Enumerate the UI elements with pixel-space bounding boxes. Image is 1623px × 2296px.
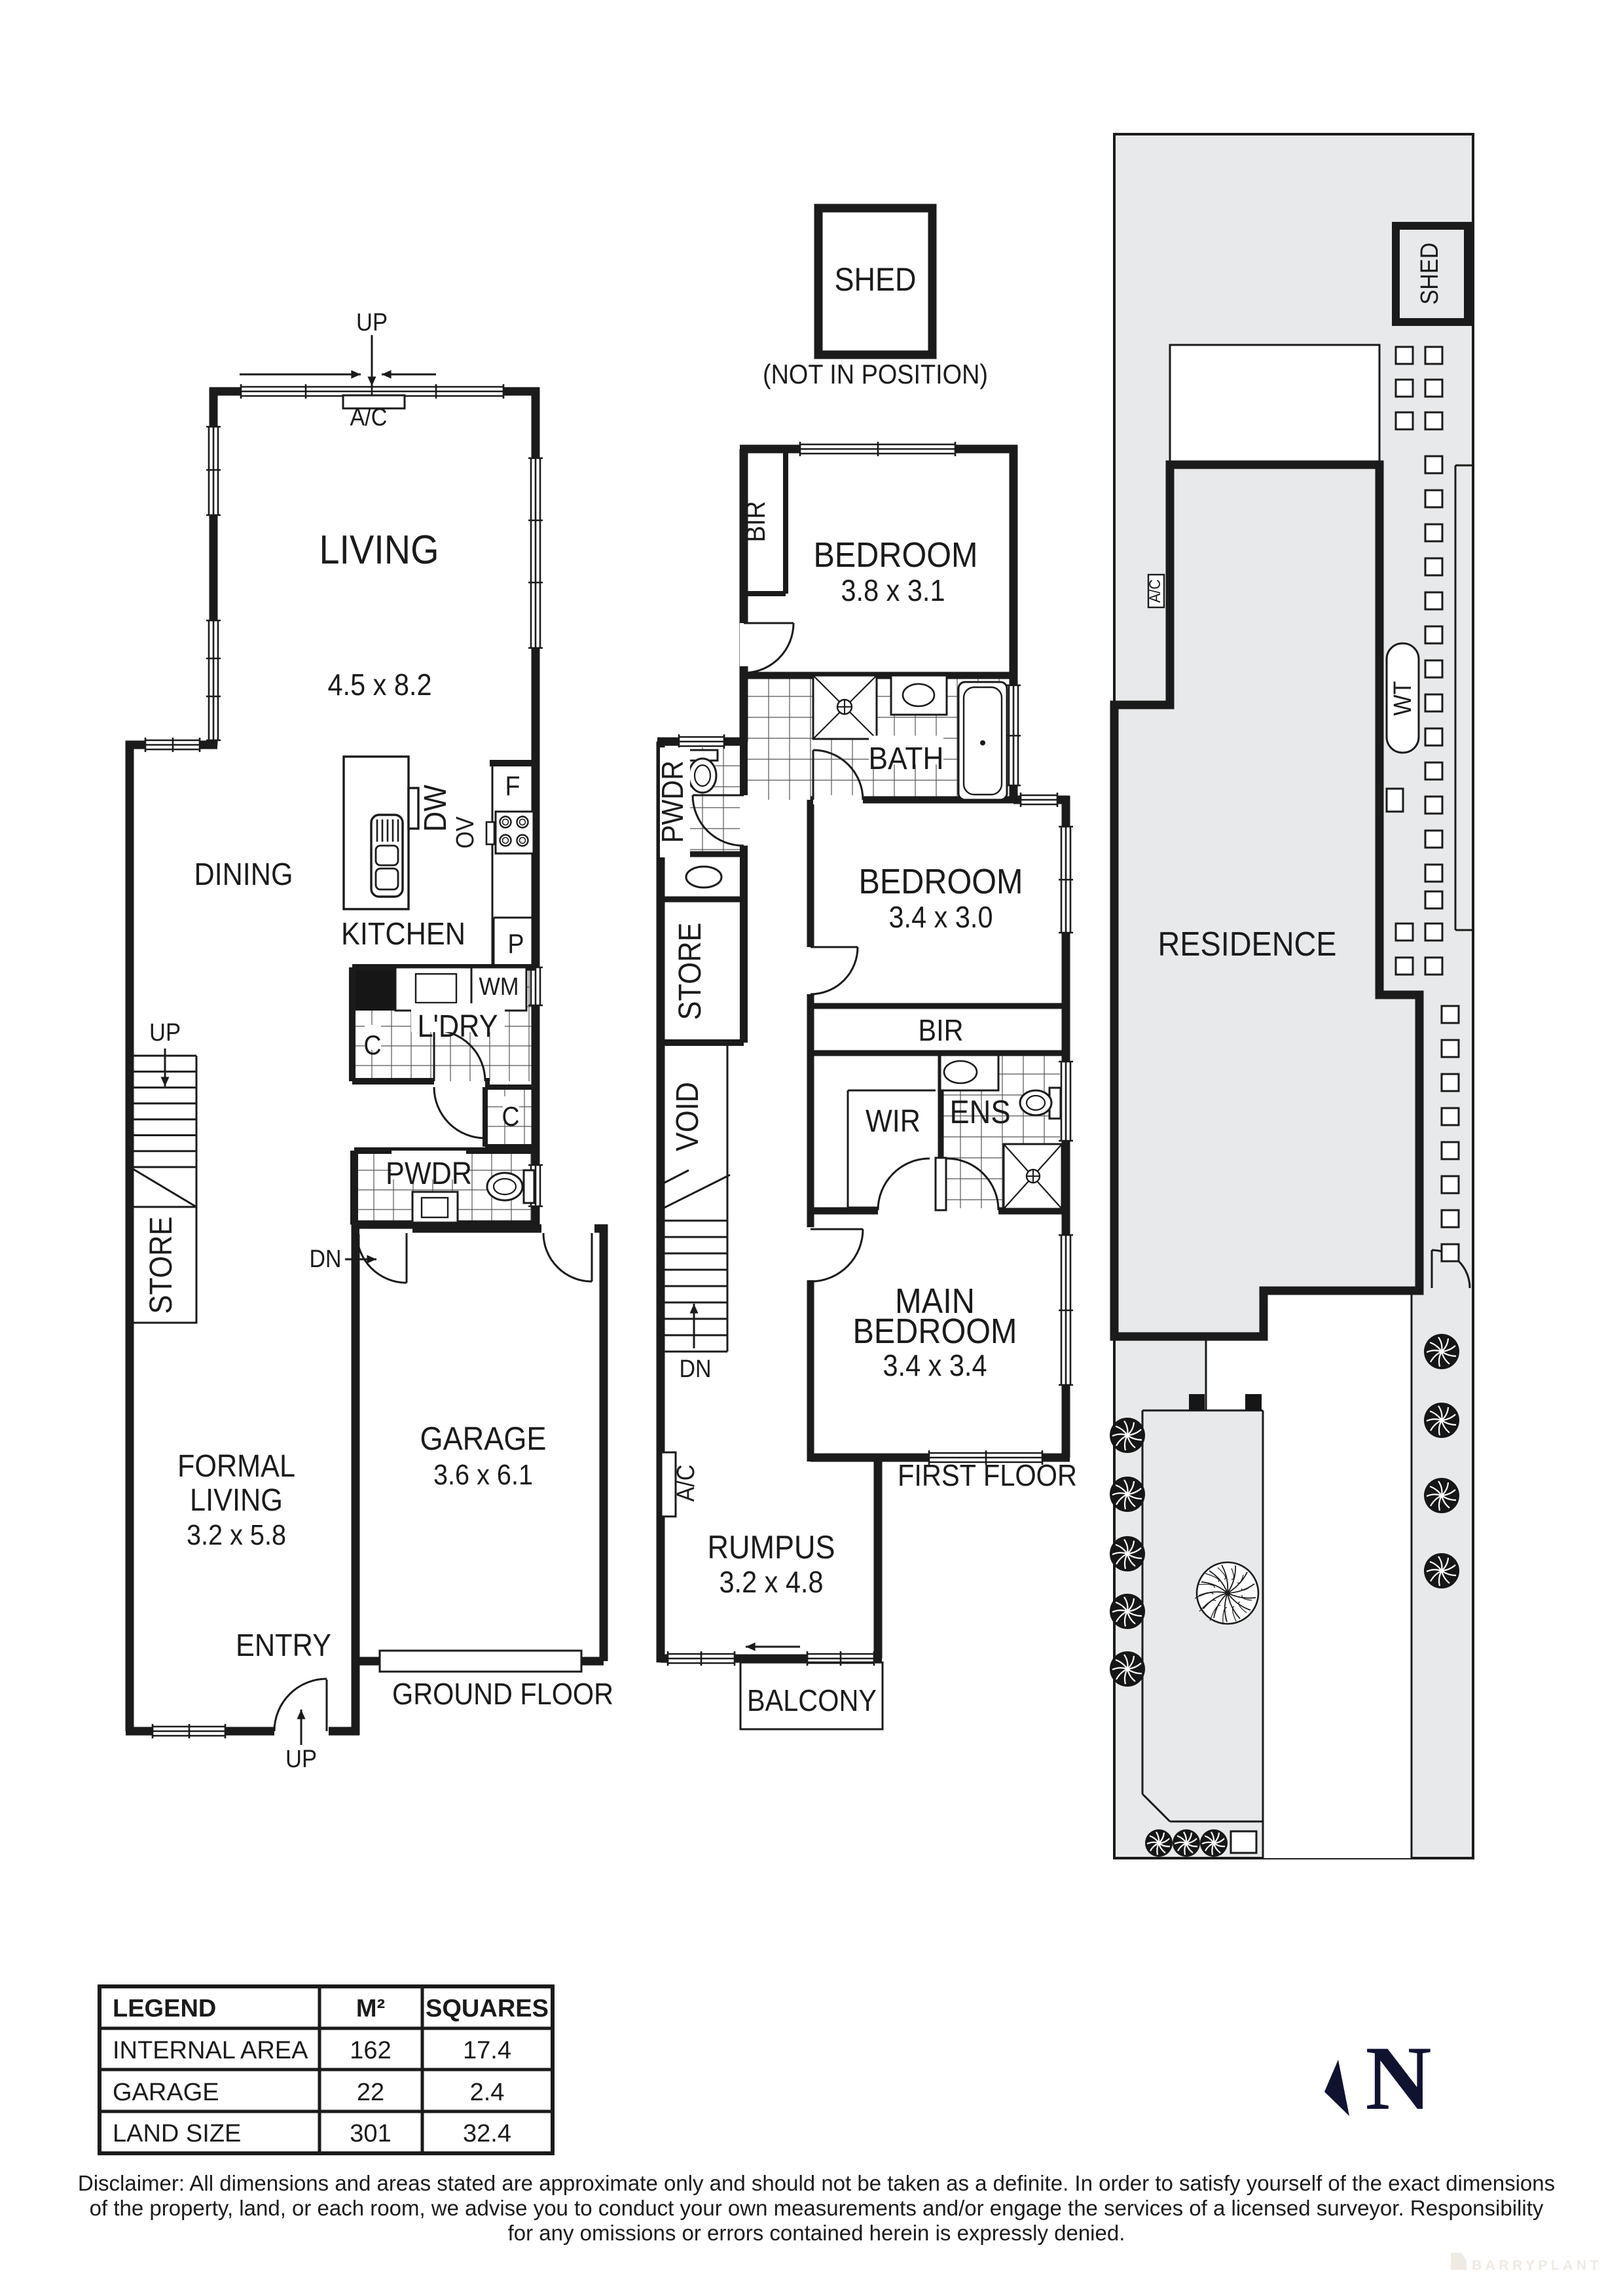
svg-text:BEDROOM: BEDROOM (814, 535, 978, 575)
svg-text:3.6 x 6.1: 3.6 x 6.1 (433, 1459, 533, 1491)
svg-text:SHED: SHED (835, 261, 917, 298)
svg-text:M²: M² (356, 1995, 385, 2022)
svg-text:BIR: BIR (740, 501, 771, 543)
svg-text:3.4 x 3.0: 3.4 x 3.0 (889, 900, 993, 934)
svg-text:KITCHEN: KITCHEN (341, 917, 465, 952)
svg-text:BIR: BIR (919, 1013, 964, 1047)
svg-text:F: F (505, 770, 520, 801)
svg-text:32.4: 32.4 (463, 2120, 511, 2147)
svg-text:DN: DN (310, 1246, 342, 1273)
svg-text:STORE: STORE (673, 923, 708, 1020)
svg-text:of the property, land, or each: of the property, land, or each room, we … (90, 2196, 1544, 2220)
svg-text:ENTRY: ENTRY (236, 1628, 331, 1663)
svg-text:VOID: VOID (670, 1082, 705, 1151)
svg-text:SHED: SHED (1416, 243, 1444, 305)
svg-text:GARAGE: GARAGE (113, 2079, 219, 2106)
svg-text:FORMAL: FORMAL (177, 1449, 295, 1484)
svg-text:L'DRY: L'DRY (418, 1009, 498, 1044)
svg-text:3.2 x 4.8: 3.2 x 4.8 (720, 1565, 824, 1599)
svg-text:BEDROOM: BEDROOM (853, 1312, 1017, 1351)
svg-text:LIVING: LIVING (319, 528, 439, 573)
svg-text:DW: DW (418, 784, 453, 832)
svg-text:2.4: 2.4 (470, 2079, 505, 2106)
svg-text:PWDR: PWDR (655, 761, 689, 843)
svg-text:WIR: WIR (866, 1104, 921, 1139)
svg-text:INTERNAL AREA: INTERNAL AREA (113, 2037, 308, 2064)
svg-text:301: 301 (350, 2120, 391, 2147)
svg-text:3.8 x 3.1: 3.8 x 3.1 (841, 573, 945, 607)
svg-text:A/C: A/C (672, 1465, 700, 1502)
svg-text:DINING: DINING (194, 857, 293, 892)
svg-text:4.5 x 8.2: 4.5 x 8.2 (328, 668, 432, 702)
svg-text:3.4 x 3.4: 3.4 x 3.4 (883, 1348, 987, 1382)
svg-text:A/C: A/C (350, 404, 388, 431)
svg-text:WM: WM (479, 973, 519, 1001)
svg-text:3.2 x 5.8: 3.2 x 5.8 (187, 1519, 286, 1551)
svg-text:BEDROOM: BEDROOM (859, 862, 1023, 901)
svg-text:LIVING: LIVING (190, 1483, 283, 1518)
svg-text:A/C: A/C (1146, 579, 1164, 603)
svg-text:DN: DN (680, 1355, 712, 1383)
svg-text:GARAGE: GARAGE (420, 1420, 547, 1457)
svg-text:UP: UP (285, 1746, 317, 1773)
svg-text:FIRST FLOOR: FIRST FLOOR (898, 1458, 1077, 1492)
svg-text:LAND SIZE: LAND SIZE (113, 2120, 241, 2147)
svg-text:(NOT IN POSITION): (NOT IN POSITION) (763, 359, 988, 389)
svg-text:UP: UP (149, 1019, 181, 1047)
svg-text:P: P (508, 928, 524, 959)
svg-text:N: N (1365, 2028, 1431, 2129)
svg-text:17.4: 17.4 (463, 2037, 511, 2064)
svg-text:OV: OV (452, 816, 479, 849)
svg-text:ENS: ENS (950, 1094, 1011, 1130)
svg-text:22: 22 (357, 2079, 384, 2106)
svg-text:BATH: BATH (869, 742, 944, 776)
svg-text:PWDR: PWDR (386, 1157, 472, 1191)
svg-text:C: C (364, 1030, 382, 1060)
svg-text:RESIDENCE: RESIDENCE (1158, 925, 1337, 963)
svg-text:RUMPUS: RUMPUS (708, 1529, 835, 1566)
svg-text:SQUARES: SQUARES (426, 1995, 549, 2022)
svg-text:BALCONY: BALCONY (747, 1683, 877, 1717)
svg-text:GROUND FLOOR: GROUND FLOOR (392, 1677, 613, 1711)
svg-text:BARRYPLANT: BARRYPLANT (1472, 2258, 1602, 2273)
svg-text:Disclaimer: All dimensions and: Disclaimer: All dimensions and areas sta… (78, 2171, 1555, 2195)
svg-text:STORE: STORE (144, 1217, 179, 1314)
svg-text:LEGEND: LEGEND (113, 1995, 216, 2022)
svg-text:162: 162 (350, 2037, 391, 2064)
svg-text:UP: UP (356, 309, 388, 336)
svg-text:for any omissions or errors co: for any omissions or errors contained he… (508, 2221, 1125, 2245)
svg-text:WT: WT (1389, 681, 1417, 716)
svg-text:C: C (502, 1101, 520, 1132)
